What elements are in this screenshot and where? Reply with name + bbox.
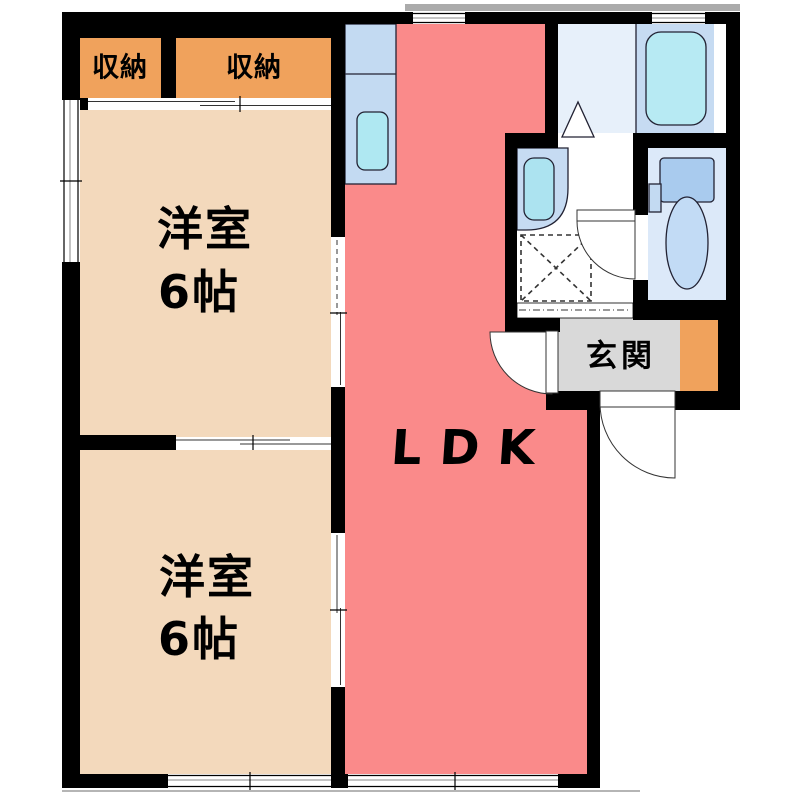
wall (465, 12, 652, 24)
sliding-door (88, 96, 331, 112)
wall (331, 774, 348, 788)
entrance-door (600, 391, 675, 407)
window (168, 772, 331, 790)
wall (62, 12, 80, 100)
wall (633, 148, 648, 215)
wall (80, 435, 176, 450)
floor-plan: 収納 収納 洋室 6帖 洋室 6帖 LDK 玄関 (0, 0, 800, 800)
wall (633, 300, 740, 320)
toilet-tank (660, 158, 714, 202)
wall (587, 403, 600, 788)
wall (80, 98, 88, 110)
ldk-label: LDK (390, 424, 555, 472)
bedroom-top-label: 洋室 (157, 206, 253, 252)
wall (345, 12, 413, 24)
wall (633, 280, 648, 303)
eave-line (405, 4, 740, 11)
closet-left-label: 収納 (92, 55, 148, 82)
wall (546, 317, 558, 331)
sliding-door (330, 533, 347, 687)
wall (718, 318, 740, 393)
wall (545, 12, 558, 143)
window (413, 12, 465, 24)
bedroom-top-size: 6帖 (158, 269, 240, 315)
wash-basin-bowl (524, 158, 554, 220)
wall (62, 12, 345, 38)
door-panel (577, 210, 635, 221)
wall (331, 687, 345, 774)
bedroom-bottom-size: 6帖 (158, 616, 240, 662)
wall (505, 133, 558, 148)
room-bath-anteroom (558, 24, 636, 133)
wall (62, 774, 168, 788)
wall (675, 391, 740, 410)
toilet-bowl (666, 197, 708, 289)
toilet-flush-handle (649, 184, 661, 212)
bathtub (646, 32, 706, 125)
genkan-label: 玄関 (586, 342, 656, 373)
door-panel (546, 331, 558, 393)
sliding-door (176, 435, 331, 450)
floor-plan-drawing (0, 0, 800, 800)
closet-right-label: 収納 (226, 55, 282, 82)
window (348, 772, 558, 790)
window (60, 100, 82, 262)
wall (62, 262, 80, 788)
wall (505, 148, 517, 332)
wall (331, 12, 345, 237)
kitchen-sink (357, 112, 388, 170)
sliding-door (517, 303, 633, 318)
entrance-door-swing-arc (600, 403, 675, 478)
wall (331, 387, 345, 533)
bedroom-bottom-label: 洋室 (159, 554, 255, 600)
sliding-door (330, 237, 347, 387)
wall (161, 38, 176, 98)
genkan-shoe-cabinet (680, 318, 718, 393)
window (652, 12, 705, 24)
wall (633, 133, 740, 148)
